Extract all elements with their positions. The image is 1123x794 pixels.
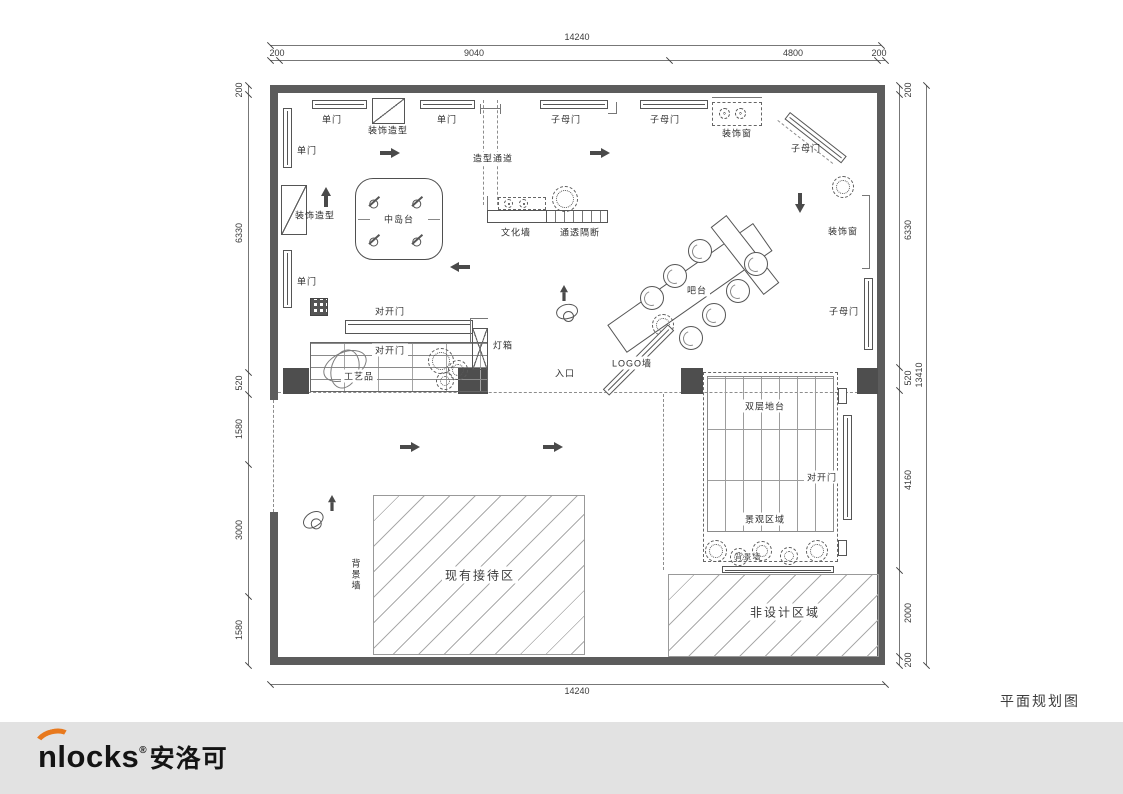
plan-title: 平面规划图 [1000, 691, 1080, 711]
label-landscape: 景观区域 [742, 513, 788, 526]
label-door-zimu-2: 子母门 [650, 113, 680, 126]
door-stop [838, 540, 847, 556]
dim-right-520: 520 [903, 370, 913, 385]
person-icon [556, 302, 578, 326]
dim-right-13410: 13410 [914, 362, 924, 387]
double-door-right [843, 415, 852, 520]
flow-arrow-right [400, 442, 420, 452]
wall-opening [268, 400, 280, 512]
door-display-bench [283, 108, 292, 168]
frame-line [470, 318, 471, 342]
corner-mark [608, 113, 617, 114]
passage-cap [500, 104, 501, 114]
dim-right-4160: 4160 [903, 470, 913, 490]
door-display-bench [640, 100, 708, 109]
label-door-single-left-1: 单门 [297, 144, 317, 157]
dim-top-total: 14240 [564, 32, 589, 42]
door-display-bench [283, 250, 292, 308]
deco-window-bracket [869, 195, 870, 268]
deco-window-bracket [712, 97, 762, 98]
label-door-double-2: 对开门 [372, 344, 408, 357]
brand-logo-word: nlocks [38, 739, 139, 775]
door-handle-icon [411, 191, 430, 210]
double-door-display [345, 320, 473, 334]
dim-line-bottom [270, 684, 885, 685]
dim-bottom-total: 14240 [564, 686, 589, 696]
door-handle-icon [368, 229, 387, 248]
label-non-design: 非设计区域 [747, 604, 823, 621]
label-deco-window-1: 装饰窗 [722, 127, 752, 140]
flow-arrow-right [543, 442, 563, 452]
pillar [283, 368, 309, 394]
label-door-zimu-3: 子母门 [791, 142, 821, 155]
label-bar: 吧台 [684, 284, 710, 297]
dim-left-1580b: 1580 [234, 620, 244, 640]
deco-window-bracket [862, 195, 870, 196]
dim-top-4800: 4800 [783, 48, 803, 58]
island-dash [428, 219, 440, 220]
bar-stool [702, 303, 726, 327]
dim-top-200a: 200 [269, 48, 284, 58]
dim-top-200b: 200 [871, 48, 886, 58]
label-partition: 通透隔断 [560, 226, 600, 239]
zone-divider-dash [663, 394, 664, 570]
label-platform: 双层地台 [742, 400, 788, 413]
door-display-bench [864, 278, 873, 350]
deco-window-bracket [862, 268, 870, 269]
label-deco-shape-1: 装饰造型 [368, 124, 408, 137]
dim-line-right-total [926, 85, 927, 665]
door-display-bench [420, 100, 475, 109]
partition-segments [546, 210, 608, 223]
label-door-single-2: 单门 [437, 113, 457, 126]
flow-arrow-up [328, 495, 336, 511]
dim-left-520: 520 [234, 375, 244, 390]
deco-shape-box [372, 98, 405, 124]
floor-plan-page: 14240 200 9040 4800 200 200 6330 520 158… [0, 0, 1123, 794]
dim-line-top-segments [270, 60, 885, 61]
dim-line-right [899, 85, 900, 665]
dim-line-left [248, 85, 249, 665]
label-door-double-3: 对开门 [804, 471, 840, 484]
flow-arrow-right [380, 148, 400, 158]
door-stop [838, 388, 847, 404]
label-passage: 造型通道 [470, 152, 516, 165]
plant-icon [519, 199, 528, 208]
dim-left-3000: 3000 [234, 520, 244, 540]
flow-arrow-down [795, 193, 805, 213]
plant-icon [780, 547, 798, 565]
label-lightbox: 灯箱 [493, 339, 513, 352]
pillar [857, 368, 878, 394]
dim-right-6330: 6330 [903, 220, 913, 240]
plant-icon [705, 540, 727, 562]
door-handle-icon [411, 229, 430, 248]
label-reception: 现有接待区 [442, 567, 518, 584]
door-display-bench [312, 100, 367, 109]
passage-cap [480, 104, 481, 114]
label-island: 中岛台 [381, 213, 417, 226]
footer-bar: nlocks ® 安洛可 [0, 722, 1123, 794]
dim-right-200a: 200 [903, 82, 913, 97]
dim-left-6330: 6330 [234, 223, 244, 243]
island-dash [358, 219, 370, 220]
plant-icon [806, 540, 828, 562]
flow-arrow-left [450, 262, 470, 272]
pillar [681, 368, 703, 394]
dim-top-9040: 9040 [464, 48, 484, 58]
dim-line-top-total [270, 45, 881, 46]
label-crafts: 工艺品 [341, 370, 377, 383]
frame-line [470, 318, 488, 319]
brand-logo: nlocks ® 安洛可 [38, 739, 228, 775]
mosaic-decor [310, 298, 328, 316]
plant-icon [504, 199, 513, 208]
lightbox-fixture [472, 328, 488, 370]
door-display-bench [540, 100, 608, 109]
plant-icon [832, 176, 854, 198]
passage-cap [480, 108, 501, 109]
bar-stool [726, 279, 750, 303]
brand-logo-reg: ® [139, 745, 146, 756]
label-deco-window-2: 装饰窗 [825, 225, 861, 238]
dim-left-1580a: 1580 [234, 419, 244, 439]
label-entrance: 入口 [555, 367, 575, 380]
label-culture-wall: 文化墙 [501, 226, 531, 239]
label-door-single-1: 单门 [322, 113, 342, 126]
flow-arrow-up [321, 187, 331, 207]
bar-stool [679, 326, 703, 350]
label-bg-wall-left: 背景墙 [350, 559, 363, 592]
flow-arrow-right [590, 148, 610, 158]
label-deco-shape-2: 装饰造型 [295, 209, 335, 222]
wall-opening-dash [273, 400, 274, 512]
bar-stool [744, 252, 768, 276]
label-door-double-1: 对开门 [372, 305, 408, 318]
label-logo-wall: LOGO墙 [609, 357, 655, 370]
label-door-zimu-1: 子母门 [551, 113, 581, 126]
dim-right-200b: 200 [903, 652, 913, 667]
dim-right-2000: 2000 [903, 603, 913, 623]
dim-left-200: 200 [234, 82, 244, 97]
bar-stool [688, 239, 712, 263]
plant-icon [735, 108, 746, 119]
plant-icon [552, 186, 578, 212]
bench-under-plants [722, 566, 834, 573]
plant-icon [436, 372, 454, 390]
plant-icon [719, 108, 730, 119]
entrance-arrow-up [560, 285, 568, 301]
brand-logo-cn: 安洛可 [150, 739, 228, 775]
bar-stool [640, 286, 664, 310]
label-door-single-left-2: 单门 [297, 275, 317, 288]
label-door-zimu-4: 子母门 [826, 305, 862, 318]
door-handle-icon [368, 191, 387, 210]
label-bg-wall-plants: 背景墙 [735, 552, 762, 563]
